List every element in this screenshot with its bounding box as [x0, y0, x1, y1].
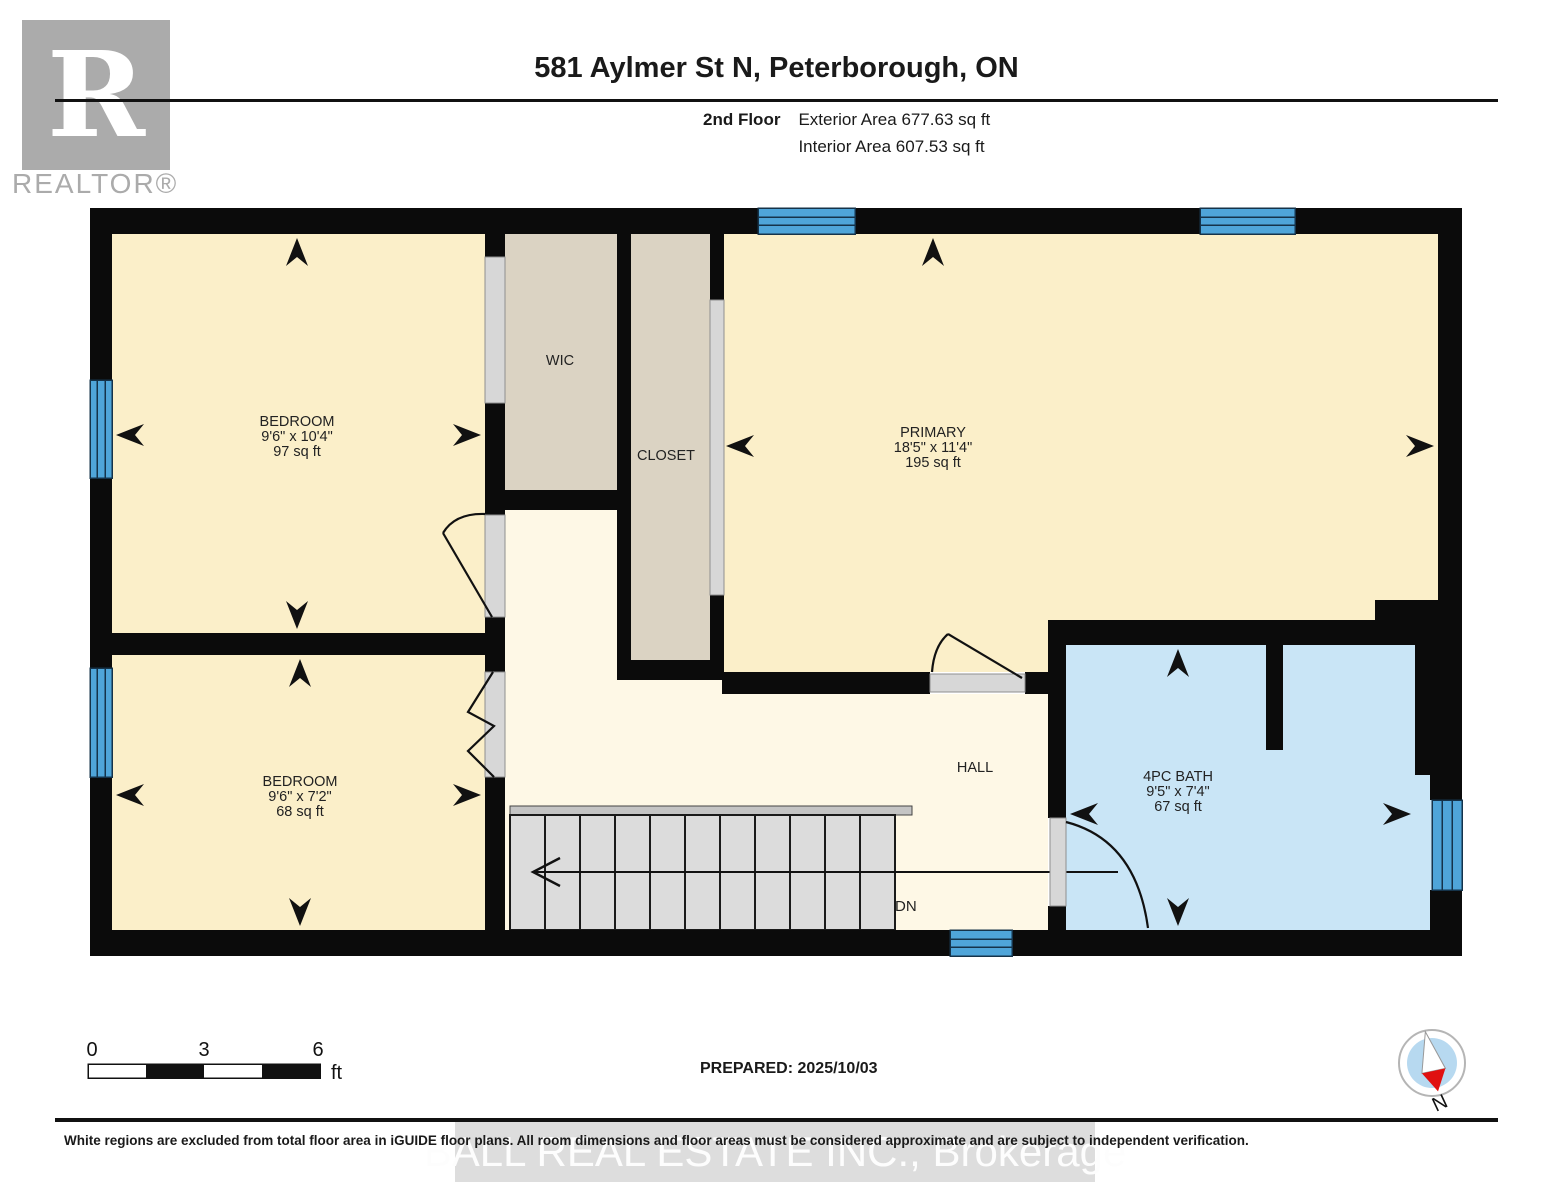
- bedroom-2-area: 68 sq ft: [276, 804, 324, 820]
- closet-label: CLOSET: [637, 448, 695, 464]
- scale-bar: 0 3 6 ft: [86, 1039, 342, 1084]
- footer-divider: [55, 1118, 1498, 1122]
- room-closet-floor: [631, 234, 710, 660]
- bath-dims: 9'5" x 7'4": [1146, 784, 1209, 800]
- scale-mid: 3: [198, 1039, 209, 1061]
- window-left-1: [90, 380, 112, 478]
- stairs-dn-label: DN: [895, 898, 917, 915]
- closet-opening: [710, 300, 724, 595]
- room-bath-floor-nook: [1415, 775, 1432, 930]
- brokerage-watermark: BALL REAL ESTATE INC., Brokerage: [455, 1122, 1095, 1182]
- window-left-2: [90, 668, 112, 777]
- primary-area: 195 sq ft: [905, 455, 961, 471]
- wic-opening: [485, 257, 505, 403]
- prepared-date: PREPARED: 2025/10/03: [700, 1060, 878, 1078]
- header-divider: [55, 99, 1498, 102]
- bedroom-2-door-opening: [485, 672, 505, 777]
- compass-north-label: N: [1429, 1090, 1451, 1116]
- floor-plan-canvas: BEDROOM 9'6" x 10'4" 97 sq ft BEDROOM 9'…: [0, 0, 1553, 1200]
- wic-label: WIC: [546, 353, 574, 369]
- room-primary-floor: [722, 234, 1438, 620]
- bath-area: 67 sq ft: [1154, 799, 1202, 815]
- window-top-2: [1200, 208, 1295, 234]
- window-bottom: [950, 930, 1012, 956]
- primary-dims: 18'5" x 11'4": [894, 440, 972, 456]
- stair-railing: [510, 806, 912, 815]
- scale-start: 0: [86, 1039, 97, 1061]
- bedroom-1-dims: 9'6" x 10'4": [261, 429, 332, 445]
- bedroom-2-name: BEDROOM: [263, 774, 338, 790]
- window-top-1: [758, 208, 855, 234]
- bedroom-1-name: BEDROOM: [260, 414, 335, 430]
- bedroom-2-dims: 9'6" x 7'2": [268, 789, 331, 805]
- hall-label: HALL: [957, 760, 993, 776]
- room-bath-floor-right: [1283, 645, 1415, 930]
- primary-door-opening: [930, 674, 1025, 692]
- primary-name: PRIMARY: [900, 425, 966, 441]
- bath-name: 4PC BATH: [1143, 769, 1213, 785]
- compass: N: [1399, 1029, 1465, 1116]
- bedroom-1-area: 97 sq ft: [273, 444, 321, 460]
- bedroom-1-door-opening: [485, 515, 505, 617]
- disclaimer-text: White regions are excluded from total fl…: [64, 1133, 1504, 1148]
- scale-unit: ft: [331, 1062, 343, 1084]
- bath-door-opening: [1050, 818, 1066, 906]
- room-bath-floor-gap: [1266, 750, 1283, 930]
- scale-end: 6: [312, 1039, 323, 1061]
- window-bath-right: [1432, 800, 1462, 890]
